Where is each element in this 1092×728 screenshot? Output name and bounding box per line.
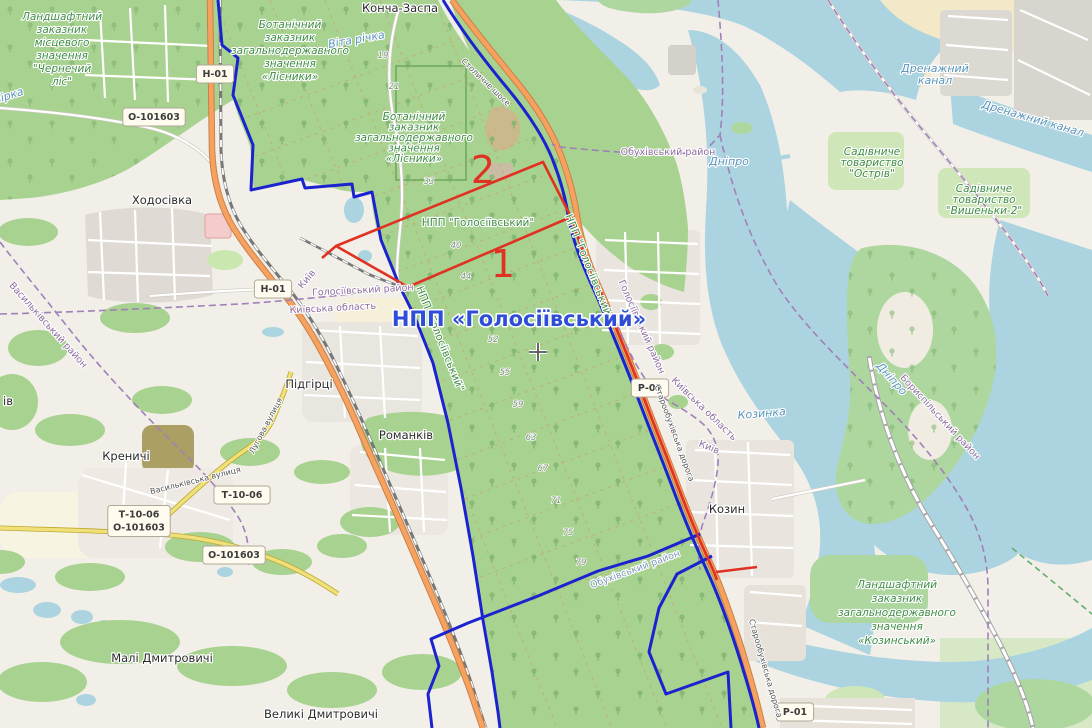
svg-text:О-101603: О-101603	[128, 112, 180, 123]
road-shield-h01-mid: Н-01	[254, 280, 291, 298]
qnum-19: 19	[378, 51, 389, 61]
town-romankiv: Романків	[379, 428, 433, 442]
svg-text:Н-01: Н-01	[260, 284, 285, 295]
town-krenychi: Креничі	[102, 449, 150, 463]
svg-text:О-101603: О-101603	[113, 523, 165, 534]
road-shield-t1006: Т-10-06	[214, 486, 270, 504]
qnum-21: 21	[389, 82, 400, 92]
gardens-ostriv: Садівничетовариство"Острів"	[840, 146, 903, 180]
svg-text:Т-10-06: Т-10-06	[222, 490, 263, 501]
map-canvas[interactable]: Н-01О-101603Н-01Р-01Р-01Т-10-06Т-10-06О-…	[0, 0, 1092, 728]
qnum-33: 33	[424, 177, 435, 187]
town-khodosivka: Ходосівка	[132, 193, 192, 207]
qnum-40: 40	[451, 241, 462, 251]
qnum-52: 52	[488, 335, 499, 345]
qnum-71: 71	[551, 496, 562, 506]
qnum-55: 55	[500, 368, 511, 378]
map-svg: Н-01О-101603Н-01Р-01Р-01Т-10-06Т-10-06О-…	[0, 0, 1092, 728]
qnum-59: 59	[513, 400, 524, 410]
qnum-44: 44	[461, 272, 472, 282]
qnum-79: 79	[576, 558, 587, 568]
zone-1-number: 1	[491, 242, 515, 286]
npp-holosiivskyi-title: НПП «Голосіївський»	[392, 307, 646, 331]
town-kozyn: Козин	[709, 502, 745, 516]
town-koncha-zaspa: Конча-Заспа	[362, 1, 438, 15]
svg-text:Н-01: Н-01	[202, 69, 227, 80]
qnum-67: 67	[538, 464, 549, 474]
svg-text:Т-10-06: Т-10-06	[119, 510, 160, 521]
town-partial-iv: ів	[3, 394, 13, 408]
gardens-vyshenky-2: Садівничетовариство"Вишеньки-2"	[946, 183, 1022, 217]
road-shield-o101603-top: О-101603	[123, 108, 185, 126]
road-shield-t1006-o101603: Т-10-06О-101603	[108, 506, 170, 537]
qnum-75: 75	[563, 528, 574, 538]
qnum-63: 63	[526, 433, 537, 443]
npp-holosiivskyi-green: НПП "Голосіївський"	[422, 217, 534, 229]
svg-text:О-101603: О-101603	[208, 550, 260, 561]
zone-2-number: 2	[471, 148, 495, 192]
road-shield-h01-top: Н-01	[196, 65, 233, 83]
town-mali-dmytrovychi: Малі Дмитровичі	[111, 651, 213, 665]
town-velyki-dmytrovychi: Великі Дмитровичі	[264, 707, 378, 721]
svg-text:Р-01: Р-01	[783, 707, 807, 718]
admin-obukhivskyi-1: Обухівський район	[621, 147, 716, 158]
town-pidhirtsi: Підгірці	[285, 377, 332, 391]
road-shield-o101603-bottom: О-101603	[203, 546, 265, 564]
